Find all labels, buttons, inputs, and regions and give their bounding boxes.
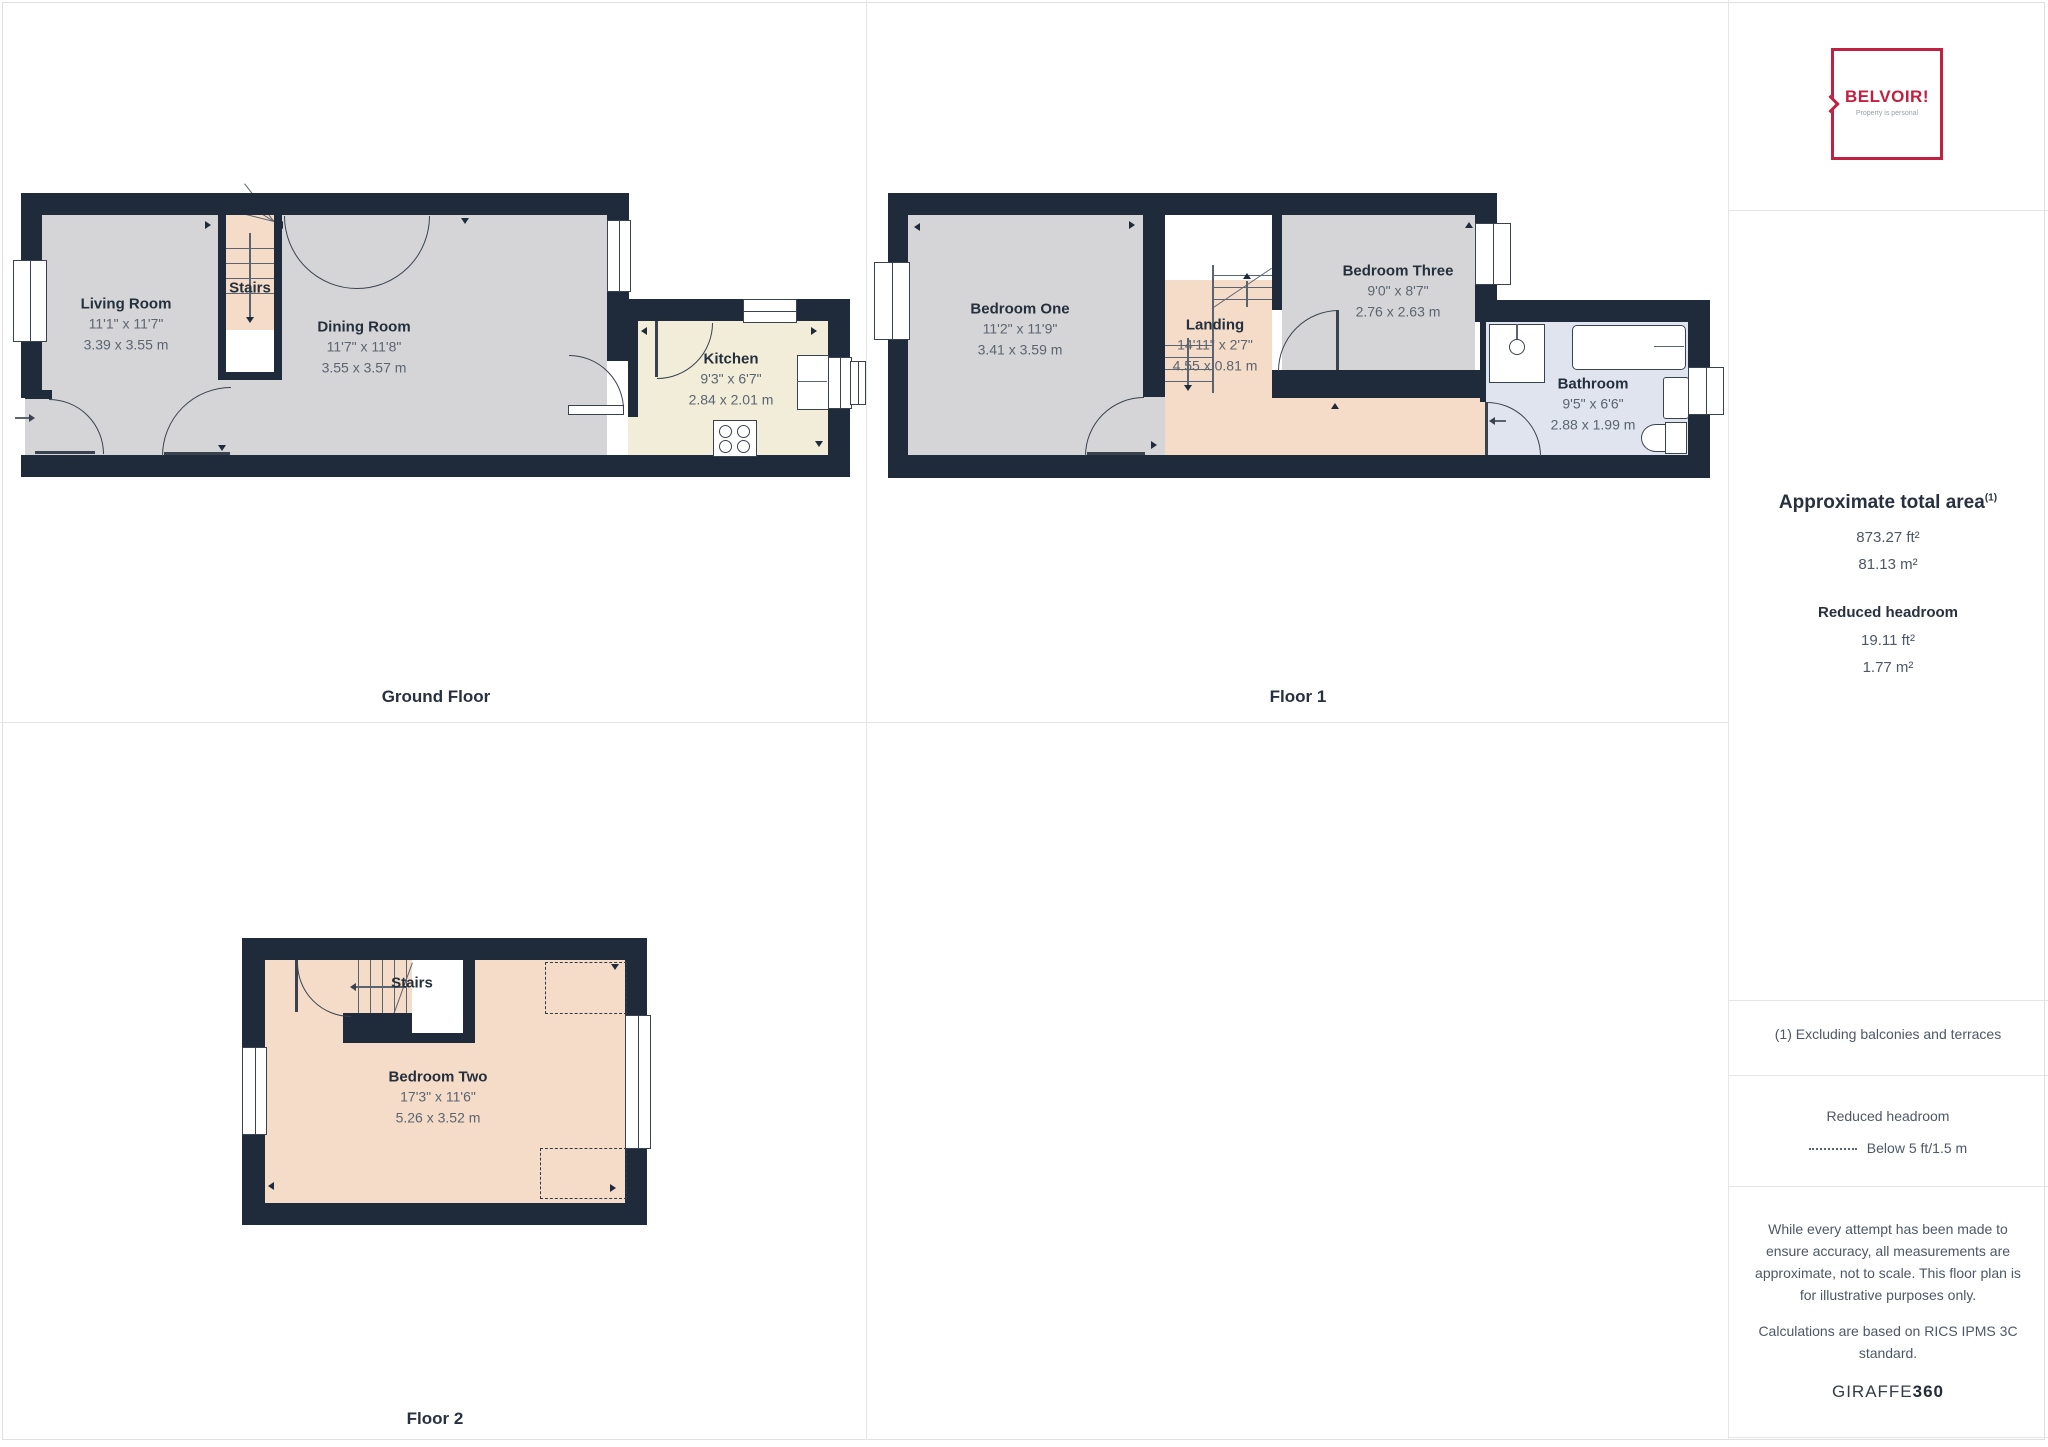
measure-arrow-icon <box>268 1182 274 1190</box>
measure-arrow-icon <box>205 221 211 229</box>
window-symbol <box>607 220 631 292</box>
wall-segment <box>888 455 1710 478</box>
door-leaf-symbol <box>164 452 230 455</box>
stair-shaft-wall <box>463 960 475 1043</box>
area-ft-value: 873.27 ft² <box>1728 524 2048 551</box>
wall-segment <box>1475 300 1710 322</box>
measure-arrow-icon <box>461 218 469 224</box>
sidebar-bottom-divider <box>1728 1437 2048 1438</box>
area-footnote-marker: (1) <box>1985 493 1997 504</box>
floor-label-first: Floor 1 <box>1270 687 1327 707</box>
stair-void <box>1165 215 1272 280</box>
wall-segment <box>1272 215 1282 310</box>
measure-arrow-icon <box>33 223 39 231</box>
bathtub-line <box>1654 346 1684 347</box>
burner-icon <box>719 425 732 438</box>
wall-segment <box>1480 322 1486 402</box>
wall-segment <box>628 299 850 321</box>
measure-arrow-icon <box>811 327 817 335</box>
window-symbol <box>828 357 852 409</box>
room-label-dining: Dining Room 11'7" x 11'8" 3.55 x 3.57 m <box>317 318 410 379</box>
room-label-bathroom: Bathroom 9'5" x 6'6" 2.88 x 1.99 m <box>1551 375 1636 436</box>
window-symbol <box>874 262 910 340</box>
floor-2-plan: Stairs Bedroom Two 17'3" x 11'6" 5.26 x … <box>242 938 647 1225</box>
burner-icon <box>737 425 750 438</box>
stair-shaft-wall <box>218 215 226 373</box>
ground-floor-plan: Living Room 11'1" x 11'7" 3.39 x 3.55 m … <box>21 193 865 477</box>
room-label-stairs: Stairs <box>229 279 271 298</box>
giraffe360-logo: GIRAFFE360 <box>1728 1382 2048 1402</box>
stair-shaft-wall <box>218 372 282 380</box>
room-label-landing: Landing 14'11" x 2'7" 4.55 x 0.81 m <box>1173 316 1258 377</box>
room-label-bedroom-three: Bedroom Three 9'0" x 8'7" 2.76 x 2.63 m <box>1343 262 1454 323</box>
burner-icon <box>719 440 732 453</box>
door-swing-arrow-line <box>1494 420 1506 422</box>
giraffe-360-text: 360 <box>1913 1382 1944 1401</box>
wall-segment <box>1143 215 1165 397</box>
sidebar-divider <box>1728 0 1729 1440</box>
room-label-bedroom-two: Bedroom Two 17'3" x 11'6" 5.26 x 3.52 m <box>389 1068 488 1129</box>
window-symbol <box>625 1015 651 1149</box>
calculation-note: Calculations are based on RICS IPMS 3C s… <box>1746 1320 2030 1364</box>
wall-segment <box>242 938 647 960</box>
reduced-m-value: 1.77 m² <box>1728 654 2048 681</box>
measure-arrow-icon <box>1465 222 1473 228</box>
counter-line <box>797 381 827 382</box>
sink-symbol <box>1663 377 1689 419</box>
area-summary: Approximate total area(1) 873.27 ft² 81.… <box>1728 492 2048 681</box>
measure-arrow-icon <box>610 1184 616 1192</box>
window-symbol <box>850 361 866 405</box>
giraffe-text: GIRAFFE <box>1832 1382 1913 1401</box>
shower-line <box>1516 324 1518 340</box>
stair-tread <box>1212 299 1272 300</box>
stove-symbol <box>713 420 757 457</box>
measure-arrow-icon <box>1151 441 1157 449</box>
window-symbol <box>242 1047 267 1135</box>
wall-segment <box>242 1203 647 1225</box>
room-label-bedroom-one: Bedroom One 11'2" x 11'9" 3.41 x 3.59 m <box>970 300 1069 361</box>
door-leaf-symbol <box>35 451 95 454</box>
legend-row: Below 5 ft/1.5 m <box>1728 1140 2048 1156</box>
stair-up-arrow-icon <box>1243 273 1251 279</box>
measure-arrow-icon <box>815 441 823 447</box>
measure-arrow-icon <box>641 327 647 335</box>
room-floor-landing-corridor <box>1272 398 1485 455</box>
stair-void <box>226 330 274 372</box>
stair-void <box>412 960 463 1033</box>
sidebar-section-divider <box>1728 1000 2048 1001</box>
measure-arrow-icon <box>218 445 226 451</box>
stair-tread <box>1165 381 1212 382</box>
measure-arrow-icon <box>277 221 283 229</box>
wall-segment <box>628 321 638 417</box>
area-title: Approximate total area(1) <box>1728 492 2048 514</box>
stair-tread <box>1212 275 1272 276</box>
wall-segment <box>888 193 1497 215</box>
measure-arrow-icon <box>914 223 920 231</box>
floor-1-plan: Bedroom One 11'2" x 11'9" 3.41 x 3.59 m … <box>888 193 1710 478</box>
room-label-stairs: Stairs <box>391 974 433 993</box>
measure-arrow-icon <box>1694 443 1702 449</box>
legend-title: Reduced headroom <box>1728 1108 2048 1124</box>
window-symbol <box>1688 367 1724 415</box>
shower-head-icon <box>1509 339 1525 355</box>
room-floor-kitchen-passage <box>628 417 638 455</box>
stair-shaft-wall <box>412 1033 475 1043</box>
room-floor-doorway <box>25 398 42 455</box>
stair-direction-line <box>249 233 251 318</box>
measure-arrow-icon <box>1129 221 1135 229</box>
door-leaf-symbol <box>1087 452 1145 455</box>
floor-label-ground: Ground Floor <box>382 687 491 707</box>
room-label-kitchen: Kitchen 9'3" x 6'7" 2.84 x 2.01 m <box>689 350 774 411</box>
measure-arrow-icon <box>1331 403 1339 409</box>
sidebar-section-divider <box>1728 210 2048 211</box>
toilet-cistern-symbol <box>1665 422 1687 454</box>
entry-arrow-line <box>15 417 30 419</box>
footnote-text: (1) Excluding balconies and terraces <box>1728 1026 2048 1042</box>
reduced-ft-value: 19.11 ft² <box>1728 627 2048 654</box>
entry-arrow-head <box>29 414 35 422</box>
stair-shaft-wall <box>274 215 282 373</box>
belvoir-logo: BELVOIR! Property is personal <box>1831 48 1943 160</box>
sidebar-section-divider <box>1728 1186 2048 1187</box>
stair-down-arrow-icon <box>1184 385 1192 391</box>
wall-segment <box>21 455 850 477</box>
stair-down-arrow-icon <box>246 317 254 323</box>
wall-segment <box>25 390 52 399</box>
reduced-headroom-title: Reduced headroom <box>1728 604 2048 621</box>
window-symbol <box>13 260 47 342</box>
window-symbol <box>1475 223 1511 285</box>
legend-item-text: Below 5 ft/1.5 m <box>1867 1140 1967 1156</box>
panel-divider-vertical <box>866 0 867 1440</box>
logo-tagline: Property is personal <box>1834 110 1940 117</box>
window-symbol <box>743 299 797 323</box>
dashed-line-icon <box>1809 1148 1857 1150</box>
measure-arrow-icon <box>611 964 619 970</box>
stair-direction-line <box>1246 281 1248 307</box>
burner-icon <box>737 440 750 453</box>
bathtub-symbol <box>1572 325 1686 370</box>
wall-segment <box>21 193 628 215</box>
counter-symbol <box>797 355 829 410</box>
area-m-value: 81.13 m² <box>1728 551 2048 578</box>
room-label-living: Living Room 11'1" x 11'7" 3.39 x 3.55 m <box>81 295 172 356</box>
floorplan-page: Living Room 11'1" x 11'7" 3.39 x 3.55 m … <box>0 0 2048 1447</box>
logo-brand-text: BELVOIR! <box>1834 87 1940 107</box>
panel-divider-horizontal <box>0 722 1728 723</box>
sidebar-section-divider <box>1728 1075 2048 1076</box>
wall-segment <box>1272 370 1485 398</box>
door-swing-arrow-icon <box>1489 417 1495 425</box>
floor-label-second: Floor 2 <box>407 1409 464 1429</box>
disclaimer-text: While every attempt has been made to ens… <box>1746 1218 2030 1306</box>
stair-shaft-wall <box>343 1013 412 1043</box>
